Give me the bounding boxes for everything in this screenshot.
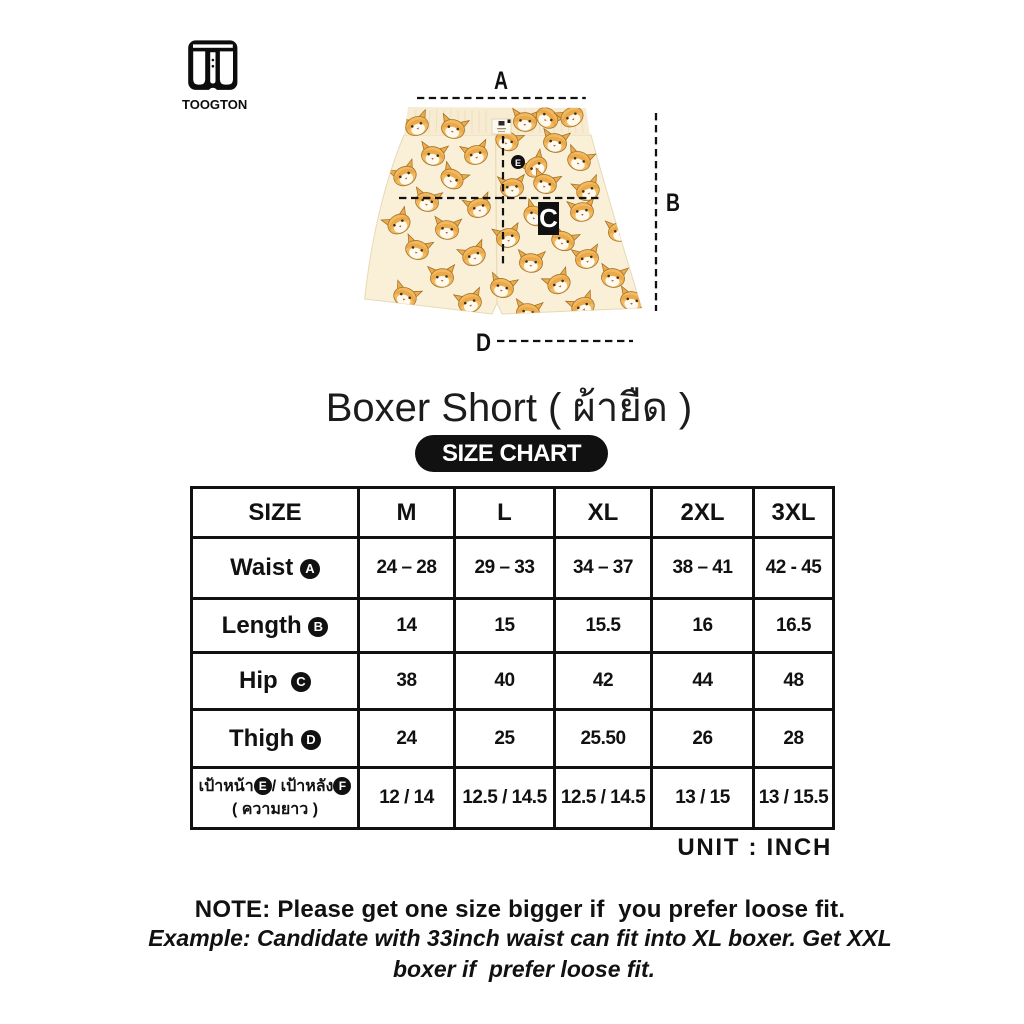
svg-text:B: B — [666, 189, 680, 217]
svg-text:C: C — [539, 203, 558, 233]
svg-text:A: A — [494, 67, 508, 95]
svg-text:D: D — [476, 329, 491, 357]
svg-text:E: E — [515, 158, 521, 168]
